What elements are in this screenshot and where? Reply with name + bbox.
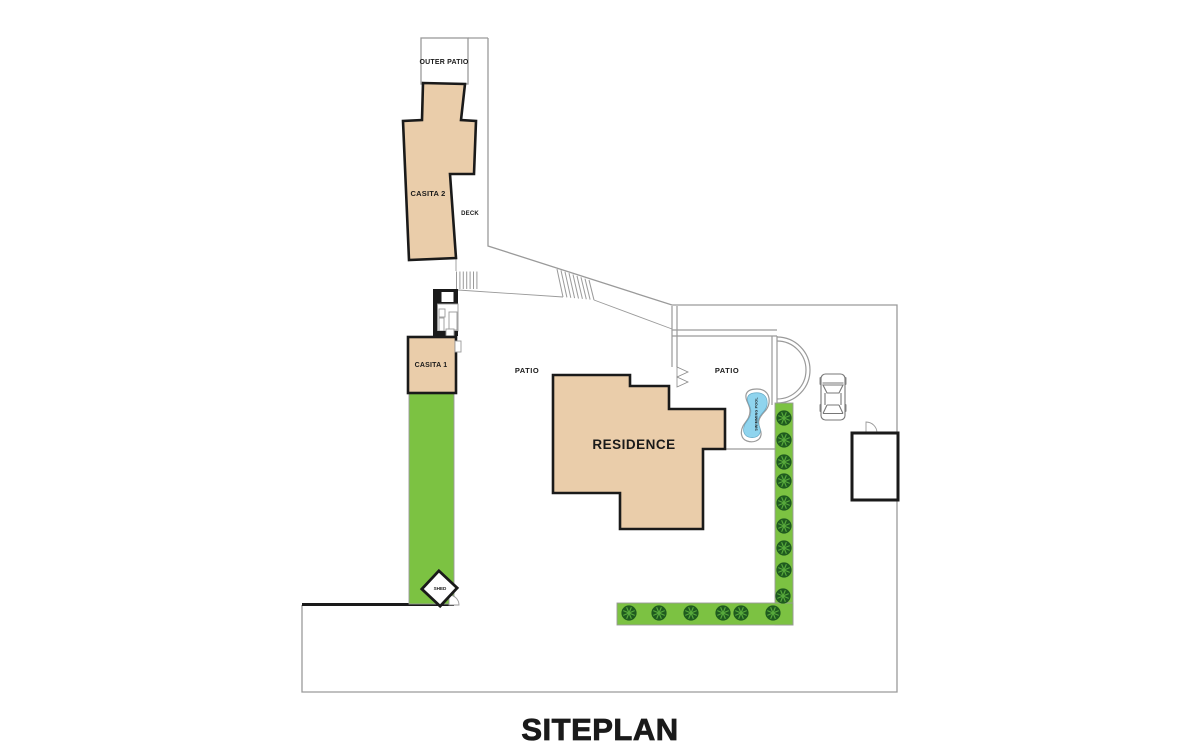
page-title: SITEPLAN <box>521 712 678 747</box>
patio-gate-arc <box>777 337 810 403</box>
label-casita-2: CASITA 2 <box>411 189 446 198</box>
casita-2-building <box>403 83 476 260</box>
garage-door-swing <box>866 422 877 433</box>
tree-icon <box>776 454 791 469</box>
patio-door-swing <box>677 367 688 387</box>
tree-icon <box>776 540 791 555</box>
siteplan-page: SWIMMING POOL OUTER PATIO CASITA 2 DECK … <box>0 0 1200 750</box>
lawn-strip <box>409 393 454 604</box>
label-deck: DECK <box>461 211 479 217</box>
label-patio-right: PATIO <box>715 366 739 375</box>
casita-1-step <box>455 341 461 352</box>
label-shed: SHED <box>434 586 447 591</box>
tree-icon <box>651 605 666 620</box>
residence-building <box>553 375 725 529</box>
pool-label: SWIMMING POOL <box>755 397 759 431</box>
tree-icon <box>776 495 791 510</box>
tree-icon <box>715 605 730 620</box>
tree-icon <box>776 562 791 577</box>
label-residence: RESIDENCE <box>592 437 675 452</box>
car <box>820 374 847 420</box>
label-outer-patio: OUTER PATIO <box>420 59 469 66</box>
siteplan-drawing: SWIMMING POOL OUTER PATIO CASITA 2 DECK … <box>0 0 1200 750</box>
garage-building <box>852 422 898 500</box>
tree-icon <box>775 588 790 603</box>
tree-icon <box>683 605 698 620</box>
tree-icon <box>621 605 636 620</box>
label-patio-left: PATIO <box>515 366 539 375</box>
stairs-hatch-deck <box>457 272 477 290</box>
tree-icon <box>776 473 791 488</box>
tree-icon <box>765 605 780 620</box>
label-casita-1: CASITA 1 <box>415 362 448 369</box>
tree-icon <box>776 432 791 447</box>
tree-icon <box>733 605 748 620</box>
property-boundary <box>302 38 897 692</box>
tree-icon <box>776 410 791 425</box>
entry-vestibule <box>433 289 458 336</box>
pool: SWIMMING POOL <box>741 389 769 442</box>
tree-icon <box>776 518 791 533</box>
